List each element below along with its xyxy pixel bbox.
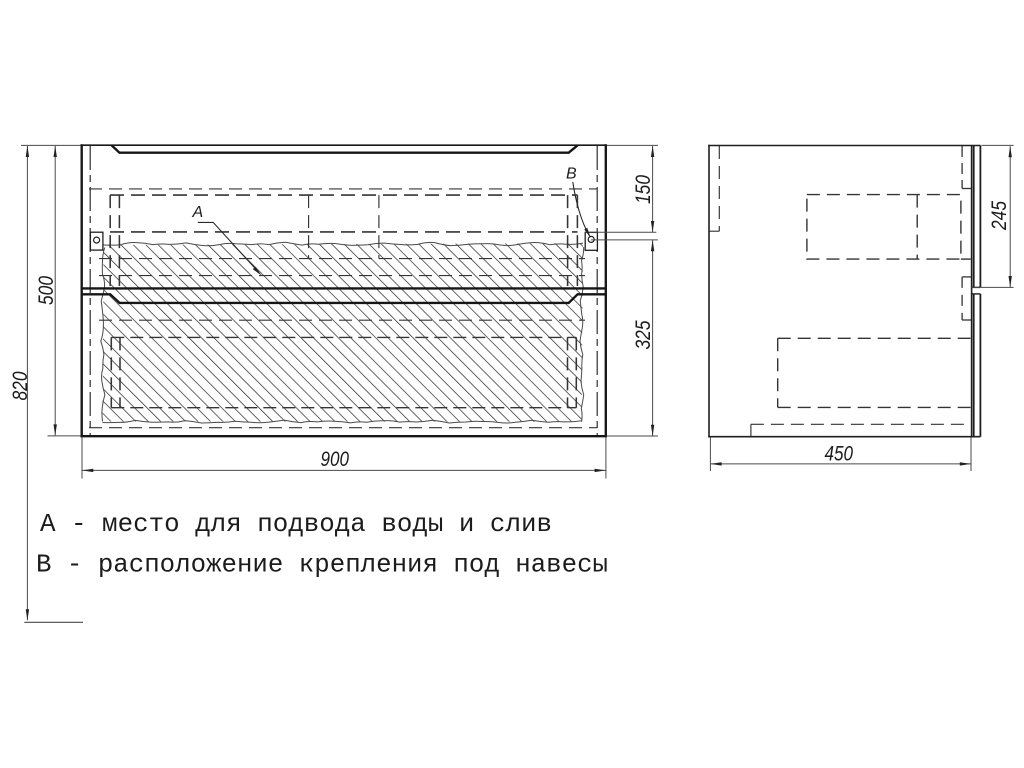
svg-text:В - расположение крепления под: В - расположение крепления под навесы [36, 550, 608, 580]
svg-text:820: 820 [9, 371, 32, 400]
svg-text:245: 245 [988, 201, 1011, 231]
svg-text:A: A [192, 204, 204, 221]
svg-text:А - место для подвода воды и с: А - место для подвода воды и слив [40, 509, 552, 539]
svg-text:325: 325 [632, 320, 655, 349]
svg-text:500: 500 [35, 276, 58, 305]
svg-text:150: 150 [632, 175, 655, 204]
svg-text:900: 900 [321, 448, 350, 471]
svg-text:450: 450 [825, 443, 854, 466]
svg-text:B: B [566, 166, 577, 183]
